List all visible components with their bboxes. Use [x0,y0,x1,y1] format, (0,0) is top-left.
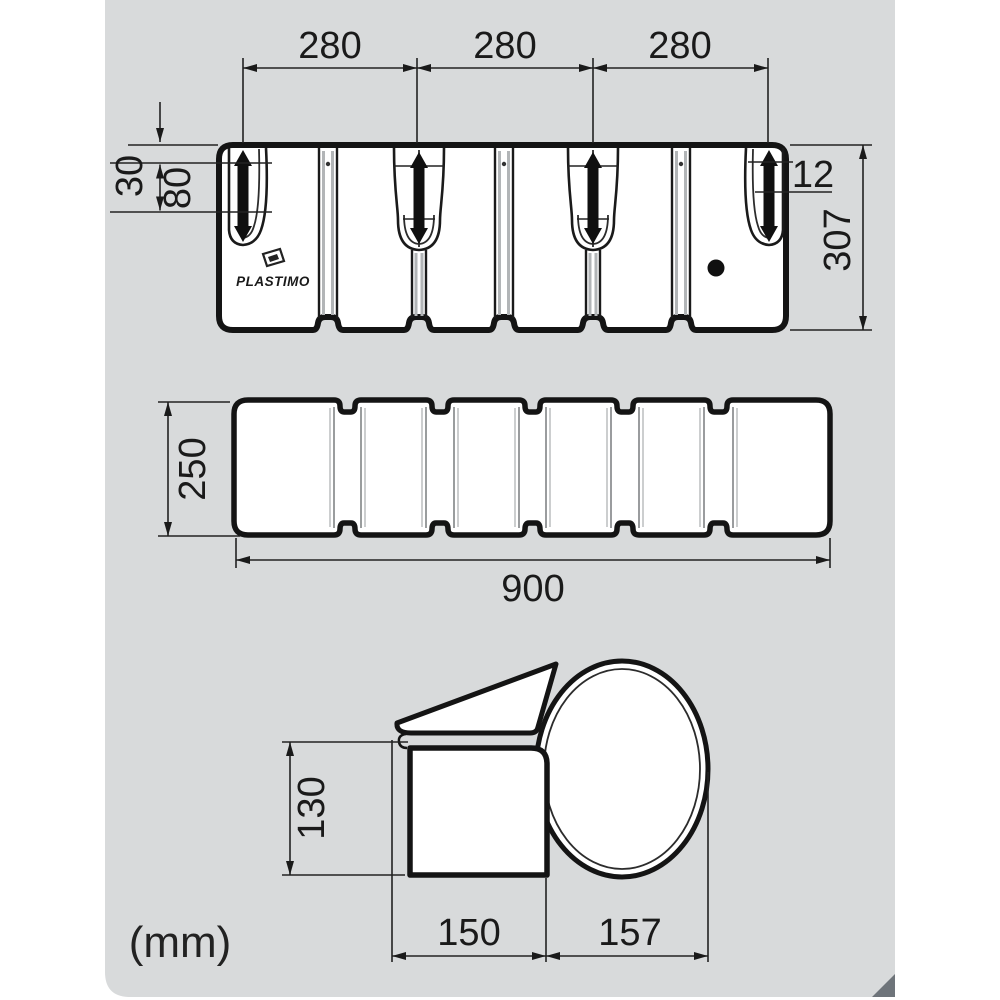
technical-drawing-canvas: PLASTIMO 280 280 280 30 80 12 307 [0,0,1000,1000]
dim-pitch-2: 280 [473,25,536,67]
top-body-outline [234,400,830,535]
dim-depth: 250 [172,437,214,500]
top-view [234,400,830,535]
dim-bumper-width: 157 [598,912,661,954]
dim-pitch-1: 280 [298,25,361,67]
bumper-profile [536,661,708,877]
dim-height: 307 [817,208,859,271]
dim-top-offset: 30 [109,155,151,197]
dim-handle-slot: 80 [157,167,199,209]
dim-side-height: 130 [291,776,333,839]
dim-pitch-3: 280 [648,25,711,67]
fender-dimension-drawing: PLASTIMO 280 280 280 30 80 12 307 [0,0,1000,1000]
dim-flange-width: 150 [437,912,500,954]
front-body-outline [219,145,786,330]
dim-slot-width: 12 [792,154,834,196]
brand-label: PLASTIMO [236,274,310,289]
units-label: (mm) [129,918,232,967]
dim-length: 900 [501,568,564,610]
base-block [410,748,547,875]
drain-hole [708,260,725,277]
front-view: PLASTIMO [219,145,786,330]
